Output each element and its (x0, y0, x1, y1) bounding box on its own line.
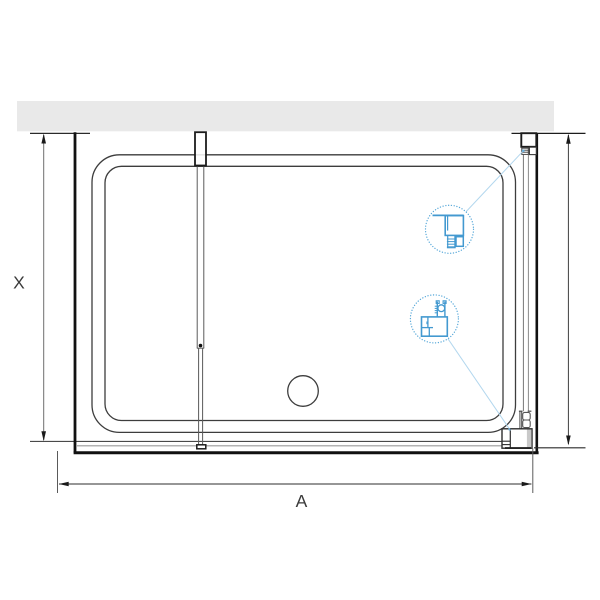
svg-text:X: X (13, 273, 25, 293)
svg-text:A: A (296, 491, 308, 511)
